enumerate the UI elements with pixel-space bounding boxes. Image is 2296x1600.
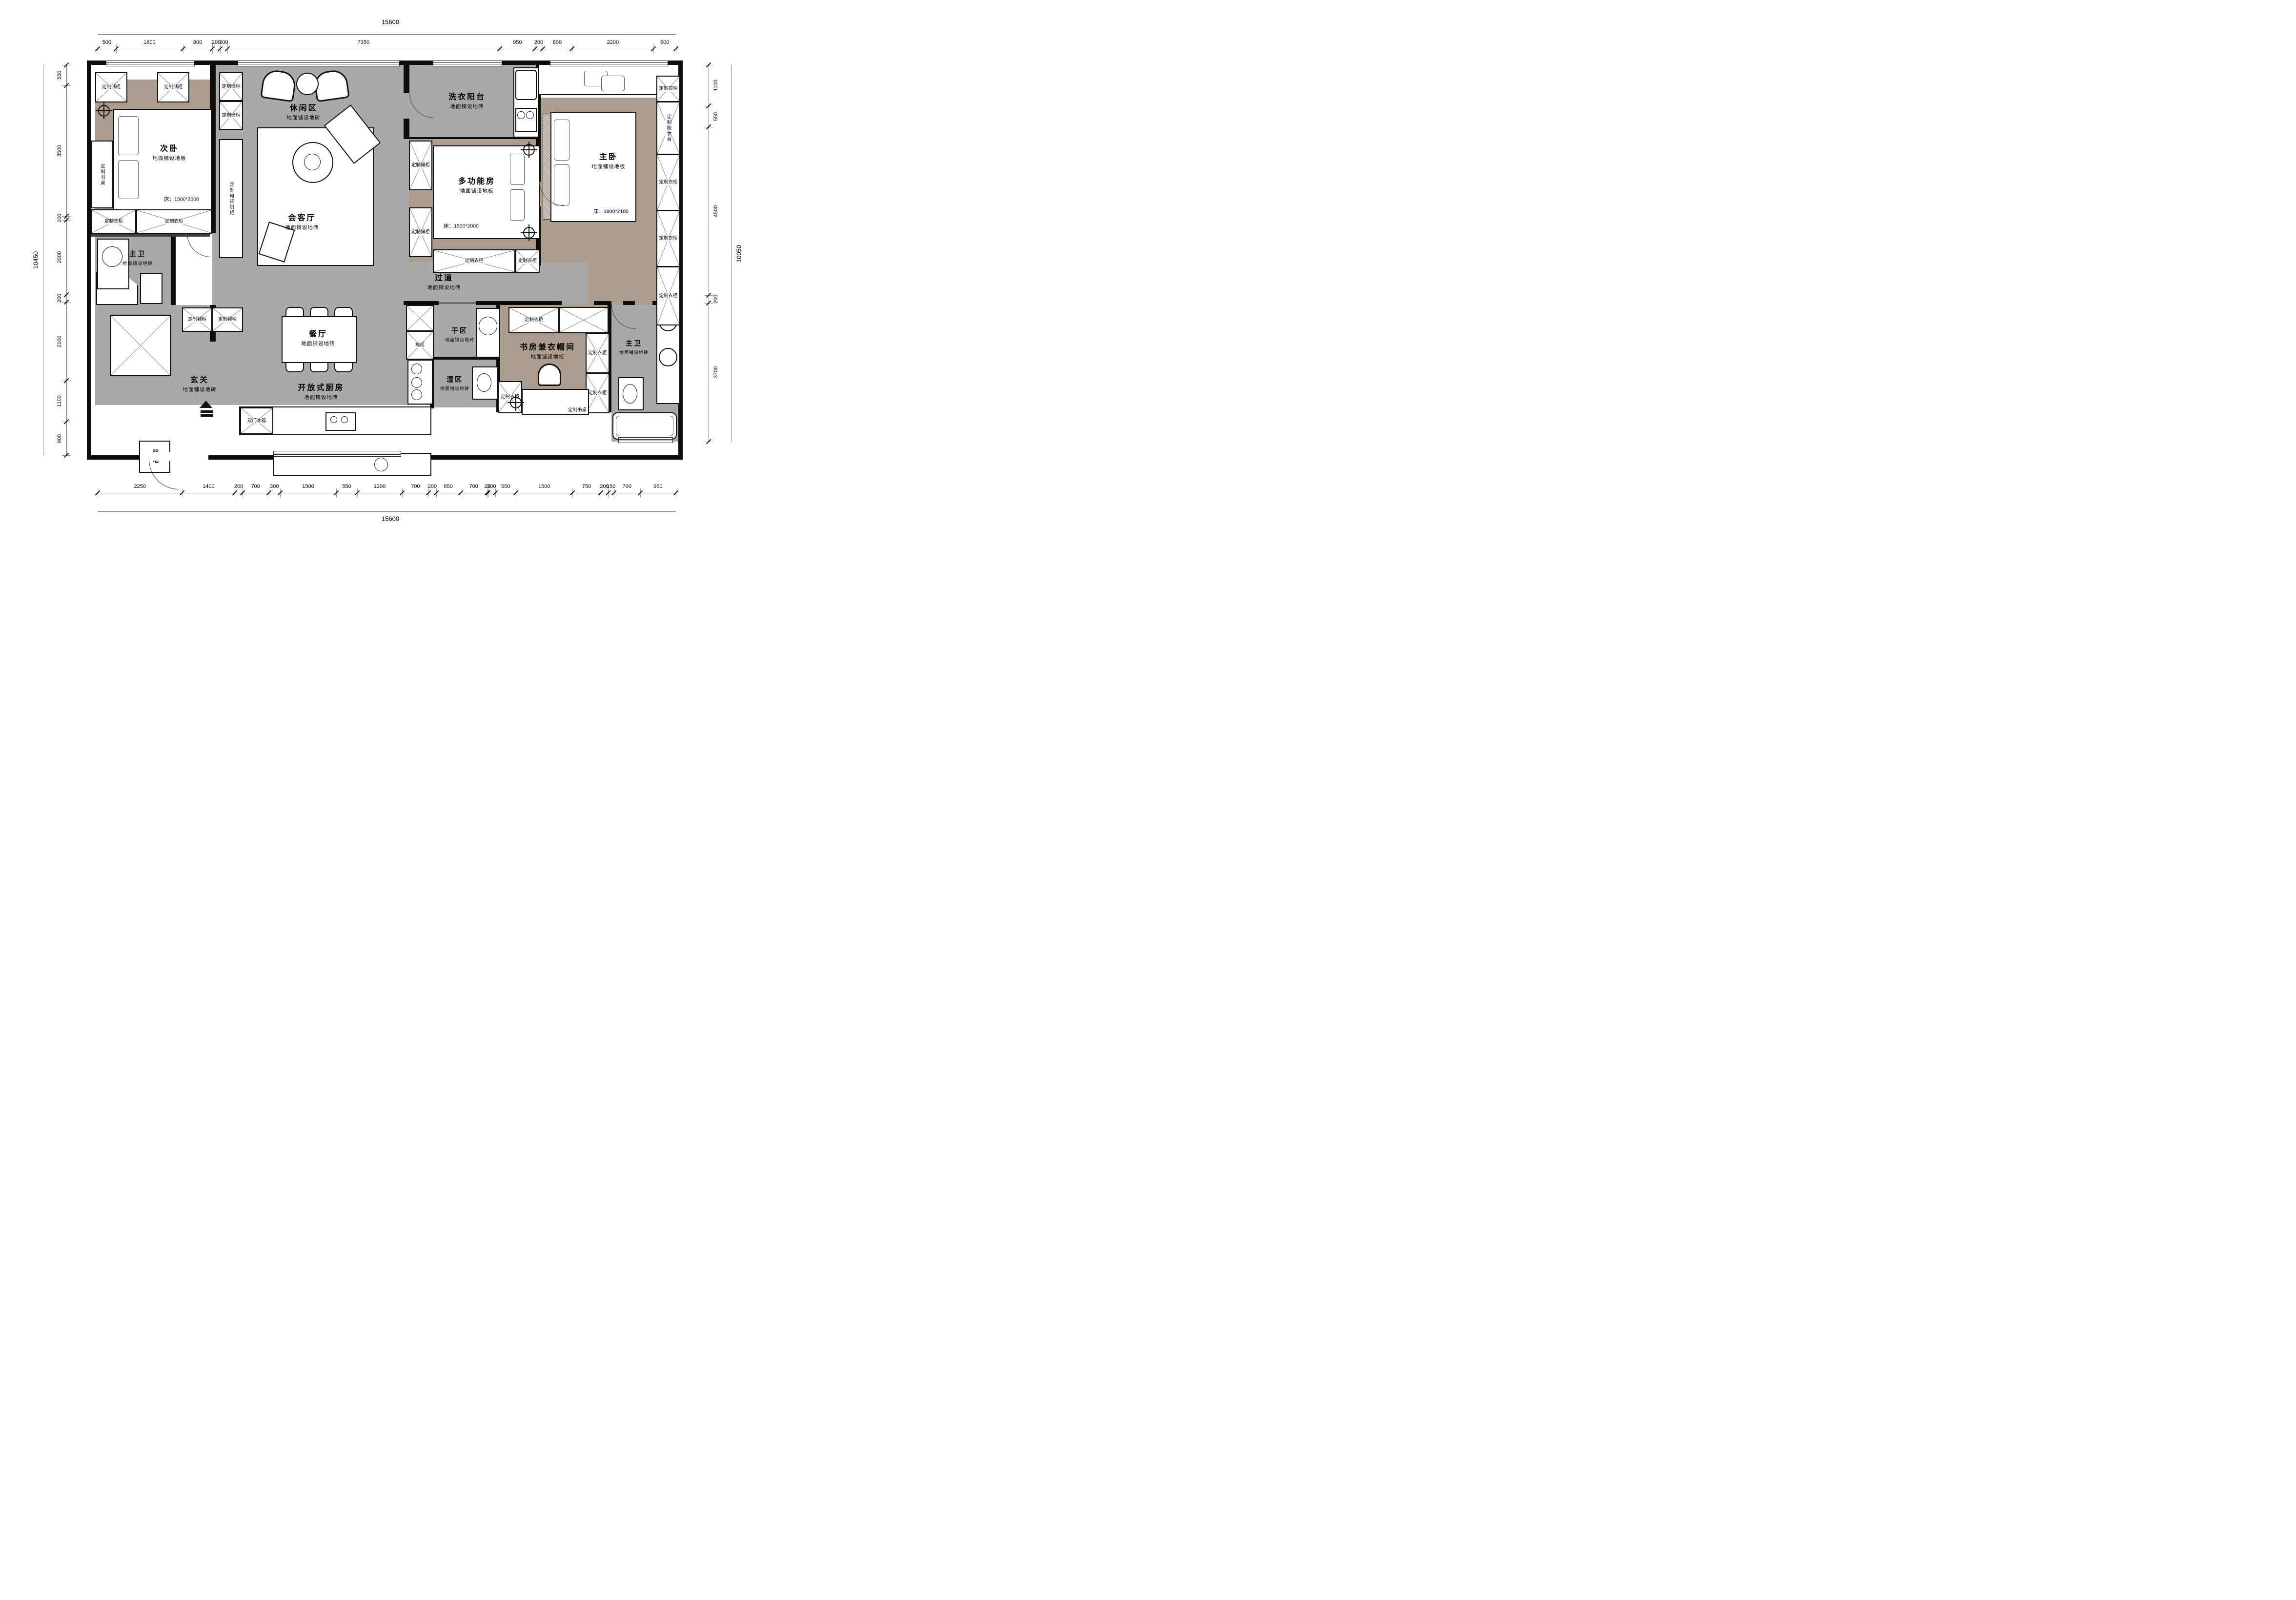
dim-label-bottom: 300 bbox=[270, 484, 279, 489]
room-label-dry-area: 干区 地面铺设地砖 bbox=[445, 326, 474, 343]
dim-line-right bbox=[709, 65, 709, 442]
ceiling-fixture-icon bbox=[523, 144, 535, 156]
sink-tap-icon bbox=[341, 416, 348, 423]
washer-drum-icon bbox=[526, 111, 534, 119]
window-top-left bbox=[106, 61, 195, 66]
floor-plan-canvas: 15600 15600 10450 10050 bbox=[0, 0, 765, 533]
wall-corridor-c bbox=[594, 301, 611, 305]
floor-plan-body: 定制储柜 定制储柜 定制书桌 定制衣柜 定制衣柜 次卧 地面铺设地板 床：150… bbox=[87, 61, 683, 460]
pillow bbox=[118, 160, 139, 199]
cabinet-wardrobe: 定制衣柜 bbox=[136, 209, 212, 234]
cabinet-storage: 定制储柜 bbox=[95, 72, 127, 102]
room-label-leisure-area: 休闲区 地面铺设地砖 bbox=[287, 101, 321, 122]
basin-icon bbox=[659, 348, 677, 366]
cabinet-storage: 定制储柜 bbox=[219, 72, 243, 101]
window-top-right bbox=[550, 61, 668, 66]
cabinet-unlabeled bbox=[559, 307, 609, 333]
dim-label-bottom: 700 bbox=[411, 484, 420, 489]
dim-label-top: 200 bbox=[219, 40, 228, 45]
kitchen-appliance-box bbox=[406, 305, 434, 331]
dim-label-bottom: 700 bbox=[251, 484, 260, 489]
dim-label-bottom: 700 bbox=[469, 484, 478, 489]
cabinet-storage: 定制储柜 bbox=[409, 207, 432, 257]
cabinet-wardrobe: 定制衣柜 bbox=[91, 209, 136, 234]
dim-label-bottom: 2250 bbox=[134, 484, 145, 489]
floor-corridor-east bbox=[539, 263, 588, 305]
dim-line-bottom bbox=[98, 493, 676, 493]
cabinet-wardrobe: 定制衣柜 bbox=[433, 249, 515, 273]
window-top-center bbox=[238, 61, 400, 66]
room-label-laundry: 洗衣阳台 地面铺设地砖 bbox=[448, 90, 486, 110]
pillow bbox=[601, 76, 625, 91]
cabinet-wardrobe: 定制衣柜 bbox=[586, 373, 610, 413]
window-bath-bottom bbox=[618, 437, 673, 443]
entry-arrow-bar2 bbox=[201, 414, 213, 417]
dim-label-top: 800 bbox=[193, 40, 202, 45]
wall-laundry-a bbox=[404, 65, 409, 93]
toilet-bowl-icon bbox=[623, 384, 637, 404]
bed-size-note: 床：1500*2000 bbox=[444, 223, 479, 230]
cabinet-wardrobe: 定制衣柜 bbox=[508, 307, 559, 333]
cabinet-dresser: 定制梳妆台 bbox=[656, 101, 680, 155]
dim-label-left: 2100 bbox=[57, 335, 62, 347]
cabinet-tall: 高柜 bbox=[406, 331, 434, 360]
cabinet-storage: 定制储柜 bbox=[409, 141, 432, 190]
dim-label-right: 4500 bbox=[713, 205, 719, 217]
pillow bbox=[510, 154, 525, 185]
dim-total-line-top bbox=[98, 34, 676, 35]
basin-icon bbox=[102, 246, 122, 267]
dim-label-left: 200 bbox=[57, 294, 62, 303]
dim-label-left: 550 bbox=[57, 71, 62, 80]
dim-total-left: 10450 bbox=[32, 251, 40, 269]
dining-chair bbox=[334, 362, 353, 372]
dining-chair bbox=[310, 362, 328, 372]
dim-line-top bbox=[98, 49, 676, 49]
bed-size-note: 床：1800*2100 bbox=[593, 208, 629, 215]
dim-total-line-right bbox=[731, 65, 731, 442]
dim-label-bottom: 650 bbox=[444, 484, 453, 489]
dim-label-right: 550 bbox=[713, 112, 719, 121]
dim-total-right: 10050 bbox=[735, 245, 743, 263]
dim-label-right: 200 bbox=[713, 295, 719, 304]
cabinet-desk: 定制书桌 bbox=[522, 389, 589, 415]
dim-total-bottom: 15600 bbox=[382, 515, 399, 523]
dim-label-bottom: 550 bbox=[342, 484, 351, 489]
pillow bbox=[510, 189, 525, 221]
room-label-corridor: 过道 地面铺设地砖 bbox=[427, 271, 461, 291]
cabinet-custom-desk: 定制书桌 bbox=[91, 141, 113, 208]
desk-chair bbox=[538, 364, 561, 386]
dim-total-line-bottom bbox=[98, 511, 676, 512]
dim-label-right: 1100 bbox=[713, 80, 719, 91]
dim-label-bottom: 950 bbox=[653, 484, 662, 489]
room-label-entry: 玄关 地面铺设地砖 bbox=[183, 373, 217, 393]
bathtub-icon bbox=[612, 412, 677, 440]
laundry-cabinet-icon bbox=[515, 70, 537, 100]
pillow bbox=[554, 120, 569, 161]
coffee-table-inner bbox=[304, 154, 321, 170]
entry-arrow-icon bbox=[200, 401, 212, 408]
dim-label-top: 800 bbox=[553, 40, 562, 45]
dim-label-top: 600 bbox=[660, 40, 669, 45]
ceiling-fixture-icon bbox=[98, 105, 110, 117]
dim-label-bottom: 550 bbox=[501, 484, 510, 489]
dim-label-top: 7350 bbox=[358, 40, 369, 45]
side-table bbox=[296, 73, 319, 95]
dim-label-top: 2200 bbox=[607, 40, 619, 45]
dim-label-bottom: 1200 bbox=[374, 484, 386, 489]
dim-label-left: 900 bbox=[57, 434, 62, 443]
cabinet-wardrobe: 定制衣柜 bbox=[515, 249, 540, 273]
toilet-icon bbox=[140, 273, 163, 304]
kitchen-sink-icon bbox=[325, 412, 356, 431]
sink-tap-icon bbox=[330, 416, 337, 423]
dining-chair bbox=[285, 362, 304, 372]
dim-label-left: 1100 bbox=[57, 395, 62, 407]
cabinet-shoe: 定制鞋柜 bbox=[212, 307, 243, 332]
entry-arrow-bar1 bbox=[201, 410, 213, 413]
dim-label-bottom: 700 bbox=[623, 484, 631, 489]
bed-size-note: 床：1500*2000 bbox=[164, 196, 199, 203]
wall-bath-left bbox=[171, 237, 176, 305]
washer-drum-icon bbox=[517, 111, 525, 119]
dim-label-left: 2000 bbox=[57, 251, 62, 263]
wall-bath-right-door-a bbox=[623, 301, 635, 305]
burner-icon bbox=[411, 364, 422, 374]
dim-total-line-left bbox=[43, 65, 43, 455]
ceiling-fixture-icon bbox=[523, 227, 535, 239]
dim-total-top: 15600 bbox=[382, 19, 399, 26]
dim-label-top: 200 bbox=[534, 40, 543, 45]
room-label-master-bath-left: 主卫 地面铺设地砖 bbox=[122, 249, 153, 266]
door-swing-bedroom bbox=[187, 233, 211, 257]
dim-label-top: 1800 bbox=[143, 40, 155, 45]
wall-corridor-a bbox=[404, 301, 439, 305]
dim-label-bottom: 200 bbox=[428, 484, 437, 489]
dim-label-right: 3700 bbox=[713, 366, 719, 378]
dim-label-bottom: 200 bbox=[234, 484, 243, 489]
cabinet-storage: 定制储柜 bbox=[219, 101, 243, 130]
sliding-door-dry-area bbox=[439, 303, 476, 304]
dim-label-bottom: 1400 bbox=[203, 484, 214, 489]
dim-line-left bbox=[66, 65, 67, 455]
dim-label-top: 500 bbox=[102, 40, 111, 45]
dim-label-left: 3500 bbox=[57, 145, 62, 157]
wall-corridor-b bbox=[476, 301, 562, 305]
dim-label-bottom: 1500 bbox=[302, 484, 314, 489]
cabinet-wardrobe: 定制衣柜 bbox=[656, 76, 680, 102]
cabinet-tv: 定制电视机柜 bbox=[219, 139, 243, 258]
room-label-multifunction: 多功能房 地面铺设地板 bbox=[458, 175, 495, 195]
dim-label-bottom: 750 bbox=[582, 484, 591, 489]
basin-icon bbox=[479, 317, 497, 335]
room-label-study: 书房兼衣帽间 地面铺设地板 bbox=[520, 341, 575, 361]
cabinet-wardrobe: 定制衣柜 bbox=[656, 154, 680, 211]
room-label-open-kitchen: 开放式厨房 地面铺设地砖 bbox=[298, 381, 344, 401]
room-label-dining: 餐厅 地面铺设地砖 bbox=[302, 327, 335, 347]
room-label-master-bath-right: 主卫 地面铺设地砖 bbox=[619, 339, 649, 356]
room-label-master-bedroom: 主卧 地面铺设地板 bbox=[592, 150, 626, 170]
elevator-shaft bbox=[110, 315, 171, 376]
cabinet-wardrobe: 定制衣柜 bbox=[656, 266, 680, 325]
dim-label-bottom: 1500 bbox=[538, 484, 550, 489]
dim-label-bottom: 200 bbox=[487, 484, 496, 489]
window-laundry bbox=[433, 61, 502, 66]
cabinet-wardrobe: 定制衣柜 bbox=[656, 210, 680, 267]
room-label-secondary-bedroom: 次卧 地面铺设地板 bbox=[153, 142, 186, 162]
cabinet-shoe: 定制鞋柜 bbox=[182, 307, 212, 332]
burner-icon bbox=[411, 377, 422, 388]
room-label-living: 会客厅 地面铺设地砖 bbox=[285, 211, 319, 231]
pillow bbox=[118, 116, 139, 155]
wall-laundry-b bbox=[404, 119, 409, 139]
toilet-bowl-icon bbox=[477, 373, 491, 392]
cabinet-storage: 定制储柜 bbox=[157, 72, 189, 102]
ceiling-fixture-icon bbox=[510, 397, 522, 408]
bay-stove-icon bbox=[374, 458, 388, 471]
burner-icon bbox=[411, 389, 422, 400]
dim-label-top: 950 bbox=[513, 40, 522, 45]
room-label-wet-area: 湿区 地面铺设地砖 bbox=[440, 375, 469, 392]
cabinet-wardrobe: 定制衣柜 bbox=[586, 333, 610, 373]
dim-label-bottom: 150 bbox=[607, 484, 615, 489]
entry-door-swing bbox=[149, 460, 179, 489]
fridge-double-door: 双门冰箱 bbox=[240, 407, 273, 434]
window-kitchen-bottom bbox=[273, 451, 401, 457]
dim-label-left: 100 bbox=[57, 214, 62, 223]
